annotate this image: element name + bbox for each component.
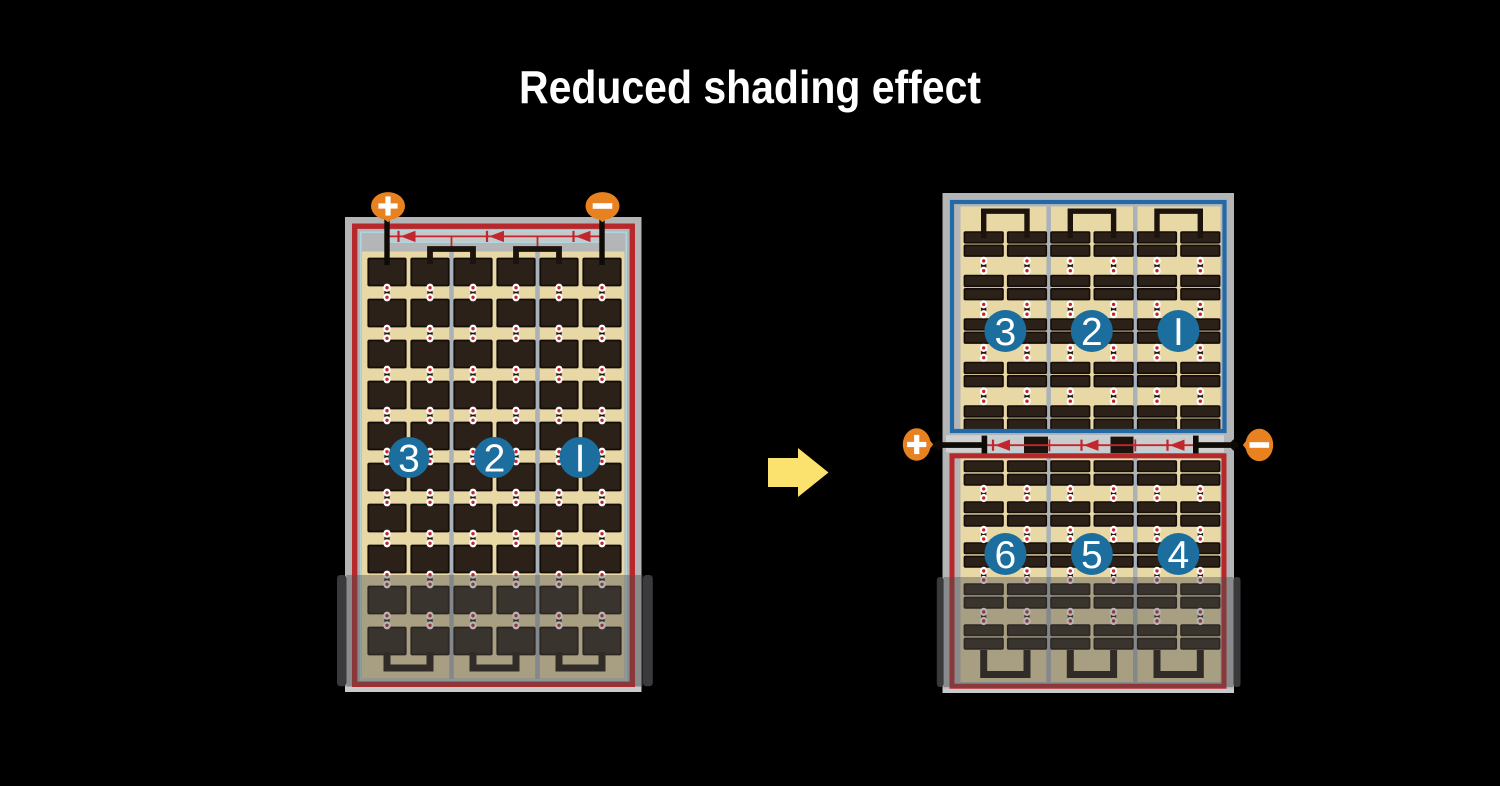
svg-text:6: 6 bbox=[995, 534, 1017, 577]
svg-text:2: 2 bbox=[1081, 311, 1103, 354]
svg-text:I: I bbox=[1173, 311, 1184, 354]
svg-text:3: 3 bbox=[995, 311, 1017, 354]
svg-text:I: I bbox=[575, 438, 586, 481]
svg-text:Reduced shading effect: Reduced shading effect bbox=[519, 61, 981, 113]
svg-text:3: 3 bbox=[398, 438, 420, 481]
svg-text:5: 5 bbox=[1081, 534, 1103, 577]
svg-text:4: 4 bbox=[1168, 534, 1190, 577]
svg-text:2: 2 bbox=[484, 438, 506, 481]
